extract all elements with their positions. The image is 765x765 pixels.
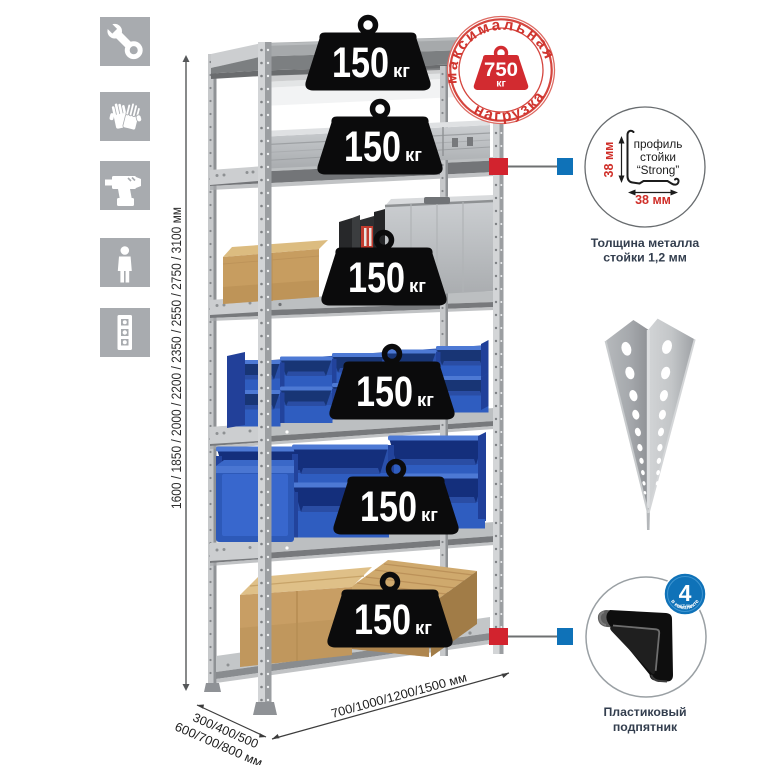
svg-text:Пластиковый: Пластиковый [603, 705, 686, 719]
svg-text:кг: кг [496, 78, 506, 90]
svg-text:стойки: стойки [640, 150, 676, 164]
svg-text:4: 4 [679, 580, 692, 606]
svg-text:38 мм: 38 мм [602, 142, 616, 178]
svg-text:подпятник: подпятник [613, 720, 678, 734]
svg-text:профиль: профиль [634, 137, 683, 151]
svg-text:1600 / 1850 / 2000 / 2200 / 23: 1600 / 1850 / 2000 / 2200 / 2350 / 2550 … [169, 207, 184, 509]
svg-text:38 мм: 38 мм [635, 193, 671, 207]
svg-text:стойки 1,2 мм: стойки 1,2 мм [603, 251, 687, 265]
svg-text:Толщина металла: Толщина металла [591, 236, 700, 250]
svg-text:“Strong”: “Strong” [637, 163, 680, 177]
